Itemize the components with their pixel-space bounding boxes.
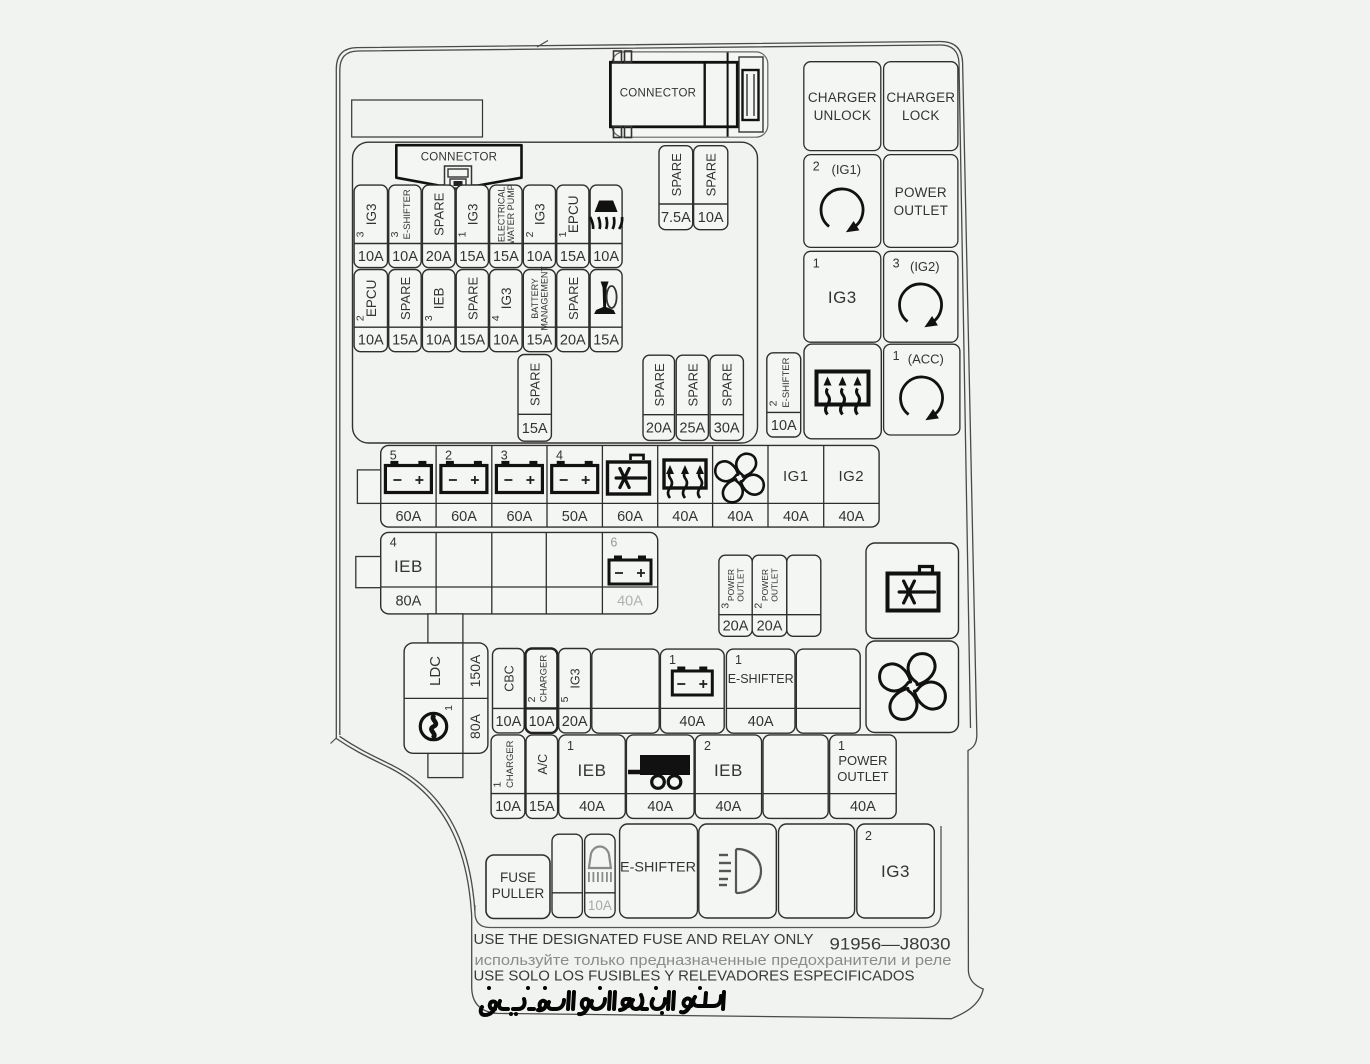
svg-text:OUTLET: OUTLET xyxy=(837,769,888,784)
svg-text:SPARE: SPARE xyxy=(566,277,581,320)
svg-text:80A: 80A xyxy=(467,713,483,739)
svg-text:1: 1 xyxy=(457,231,469,237)
svg-text:SPARE: SPARE xyxy=(432,192,447,235)
svg-text:(IG2): (IG2) xyxy=(910,259,940,274)
svg-text:3: 3 xyxy=(423,315,435,321)
svg-text:E-SHIFTER: E-SHIFTER xyxy=(781,357,792,407)
svg-text:1: 1 xyxy=(557,231,569,237)
svg-text:CHARGER: CHARGER xyxy=(886,90,955,105)
svg-text:20A: 20A xyxy=(646,421,672,437)
svg-text:CHARGER: CHARGER xyxy=(505,740,516,788)
svg-text:E-SHIFTER: E-SHIFTER xyxy=(402,189,413,239)
svg-text:6: 6 xyxy=(610,536,617,550)
svg-text:2: 2 xyxy=(813,160,820,174)
svg-text:UNLOCK: UNLOCK xyxy=(814,108,871,123)
svg-text:40A: 40A xyxy=(579,799,605,815)
svg-text:15A: 15A xyxy=(493,249,519,265)
svg-text:LDC: LDC xyxy=(427,656,444,686)
svg-text:15A: 15A xyxy=(459,249,485,265)
svg-text:10A: 10A xyxy=(493,333,519,349)
svg-text:40A: 40A xyxy=(715,799,741,815)
svg-text:FUSE: FUSE xyxy=(500,870,536,885)
svg-text:15A: 15A xyxy=(459,333,485,349)
svg-text:IG3: IG3 xyxy=(532,203,547,225)
svg-text:BATTERY: BATTERY xyxy=(530,278,540,319)
svg-text:IG3: IG3 xyxy=(828,288,857,307)
svg-text:IG3: IG3 xyxy=(465,203,480,225)
svg-text:IG3: IG3 xyxy=(499,288,514,310)
svg-text:EPCU: EPCU xyxy=(364,280,379,318)
svg-text:SPARE: SPARE xyxy=(685,363,700,406)
svg-text:EPCU: EPCU xyxy=(566,196,581,234)
svg-text:10A: 10A xyxy=(698,210,724,226)
svg-text:3: 3 xyxy=(719,603,731,609)
svg-text:20A: 20A xyxy=(426,249,452,265)
svg-text:40A: 40A xyxy=(850,799,876,815)
svg-text:IG3: IG3 xyxy=(881,862,910,881)
svg-text:3: 3 xyxy=(893,256,900,270)
svg-text:10A: 10A xyxy=(529,714,555,730)
svg-text:IG1: IG1 xyxy=(783,468,809,485)
svg-text:POWER: POWER xyxy=(838,753,887,768)
svg-text:1: 1 xyxy=(443,705,455,711)
svg-text:15A: 15A xyxy=(522,421,548,437)
svg-text:2: 2 xyxy=(355,315,367,321)
svg-text:1: 1 xyxy=(669,653,676,667)
svg-text:A/C: A/C xyxy=(536,754,550,775)
svg-text:IEB: IEB xyxy=(432,288,447,310)
svg-text:1: 1 xyxy=(567,739,574,753)
svg-text:15A: 15A xyxy=(526,333,552,349)
svg-text:40A: 40A xyxy=(783,509,809,525)
svg-text:10A: 10A xyxy=(495,714,521,730)
svg-text:USE THE DESIGNATED FUSE AND RE: USE THE DESIGNATED FUSE AND RELAY ONLY xyxy=(474,931,814,948)
svg-text:OUTLET: OUTLET xyxy=(736,568,746,602)
svg-text:40A: 40A xyxy=(617,594,643,610)
svg-text:4: 4 xyxy=(490,315,502,321)
svg-text:40A: 40A xyxy=(727,509,753,525)
svg-text:SPARE: SPARE xyxy=(704,153,719,196)
svg-text:POWER: POWER xyxy=(895,185,947,200)
svg-text:10A: 10A xyxy=(358,333,384,349)
svg-text:(IG1): (IG1) xyxy=(831,162,861,177)
svg-text:SPARE: SPARE xyxy=(652,363,667,406)
svg-text:CONNECTOR: CONNECTOR xyxy=(421,152,498,164)
svg-text:80A: 80A xyxy=(395,594,421,610)
svg-text:POWER: POWER xyxy=(760,569,770,601)
svg-text:(ACC): (ACC) xyxy=(908,352,944,367)
svg-text:1: 1 xyxy=(813,256,820,270)
svg-text:15A: 15A xyxy=(392,333,418,349)
svg-text:25A: 25A xyxy=(679,421,705,437)
svg-text:IEB: IEB xyxy=(578,761,607,780)
svg-text:60A: 60A xyxy=(506,509,532,525)
svg-text:15A: 15A xyxy=(529,799,555,815)
svg-text:2: 2 xyxy=(704,739,711,753)
svg-text:CHARGER: CHARGER xyxy=(539,655,550,703)
svg-text:IEB: IEB xyxy=(714,761,743,780)
svg-text:2: 2 xyxy=(524,231,536,237)
svg-text:60A: 60A xyxy=(451,509,477,525)
svg-text:60A: 60A xyxy=(617,509,643,525)
svg-text:CBC: CBC xyxy=(502,665,516,691)
svg-text:10A: 10A xyxy=(426,333,452,349)
svg-text:3: 3 xyxy=(389,231,401,237)
svg-text:IEB: IEB xyxy=(394,557,423,576)
svg-text:30A: 30A xyxy=(714,421,740,437)
svg-text:SPARE: SPARE xyxy=(669,153,684,196)
svg-text:2: 2 xyxy=(526,696,538,702)
svg-text:15A: 15A xyxy=(593,333,619,349)
svg-text:2: 2 xyxy=(767,400,779,406)
svg-text:20A: 20A xyxy=(562,714,588,730)
svg-text:10A: 10A xyxy=(392,249,418,265)
svg-text:40A: 40A xyxy=(748,714,774,730)
svg-text:WATER PUMP: WATER PUMP xyxy=(506,184,516,244)
svg-text:OUTLET: OUTLET xyxy=(770,568,780,602)
svg-text:PULLER: PULLER xyxy=(492,886,545,901)
svg-text:5: 5 xyxy=(559,696,571,702)
svg-text:3: 3 xyxy=(501,449,508,463)
svg-text:SPARE: SPARE xyxy=(465,277,480,320)
svg-text:7.5A: 7.5A xyxy=(661,210,691,226)
svg-text:USE SOLO LOS FUSIBLES Y RELEVA: USE SOLO LOS FUSIBLES Y RELEVADORES ESPE… xyxy=(474,968,915,985)
svg-text:SPARE: SPARE xyxy=(720,363,735,406)
svg-text:1: 1 xyxy=(893,349,900,363)
svg-text:50A: 50A xyxy=(562,509,588,525)
svg-text:CONNECTOR: CONNECTOR xyxy=(620,88,697,100)
svg-text:150A: 150A xyxy=(467,654,483,687)
svg-text:ELECTRICAL: ELECTRICAL xyxy=(496,187,506,243)
svg-text:4: 4 xyxy=(556,449,563,463)
svg-text:POWER: POWER xyxy=(726,569,736,601)
svg-text:40A: 40A xyxy=(647,799,673,815)
svg-text:10A: 10A xyxy=(771,418,797,434)
svg-text:5: 5 xyxy=(390,449,397,463)
svg-text:10A: 10A xyxy=(588,898,612,913)
svg-text:IG2: IG2 xyxy=(838,468,864,485)
svg-text:15A: 15A xyxy=(560,249,586,265)
svg-text:OUTLET: OUTLET xyxy=(894,203,948,218)
svg-text:MANAGEMENT: MANAGEMENT xyxy=(539,266,549,331)
svg-text:20A: 20A xyxy=(560,333,586,349)
svg-text:20A: 20A xyxy=(723,619,749,635)
svg-text:SPARE: SPARE xyxy=(528,363,543,406)
svg-text:E-SHIFTER: E-SHIFTER xyxy=(728,672,794,686)
svg-text:10A: 10A xyxy=(358,249,384,265)
svg-text:IG3: IG3 xyxy=(569,668,583,688)
svg-text:IG3: IG3 xyxy=(364,203,379,225)
svg-text:1: 1 xyxy=(492,782,504,788)
svg-text:LOCK: LOCK xyxy=(902,108,940,123)
svg-text:4: 4 xyxy=(390,536,397,550)
svg-text:1: 1 xyxy=(838,739,845,753)
svg-text:10A: 10A xyxy=(526,249,552,265)
svg-text:E-SHIFTER: E-SHIFTER xyxy=(620,860,696,875)
svg-text:10A: 10A xyxy=(495,799,521,815)
svg-text:2: 2 xyxy=(865,829,872,843)
svg-text:60A: 60A xyxy=(395,509,421,525)
svg-text:40A: 40A xyxy=(838,509,864,525)
svg-text:SPARE: SPARE xyxy=(398,277,413,320)
svg-text:CHARGER: CHARGER xyxy=(808,90,877,105)
svg-text:2: 2 xyxy=(445,449,452,463)
svg-text:91956—J8030: 91956—J8030 xyxy=(830,935,951,954)
svg-text:2: 2 xyxy=(753,603,765,609)
svg-text:40A: 40A xyxy=(672,509,698,525)
svg-text:40A: 40A xyxy=(679,714,705,730)
svg-text:3: 3 xyxy=(355,231,367,237)
svg-text:используйте только предназначе: используйте только предназначенные предо… xyxy=(475,952,952,969)
svg-text:10A: 10A xyxy=(593,249,619,265)
svg-text:1: 1 xyxy=(735,653,742,667)
svg-text:20A: 20A xyxy=(757,619,783,635)
